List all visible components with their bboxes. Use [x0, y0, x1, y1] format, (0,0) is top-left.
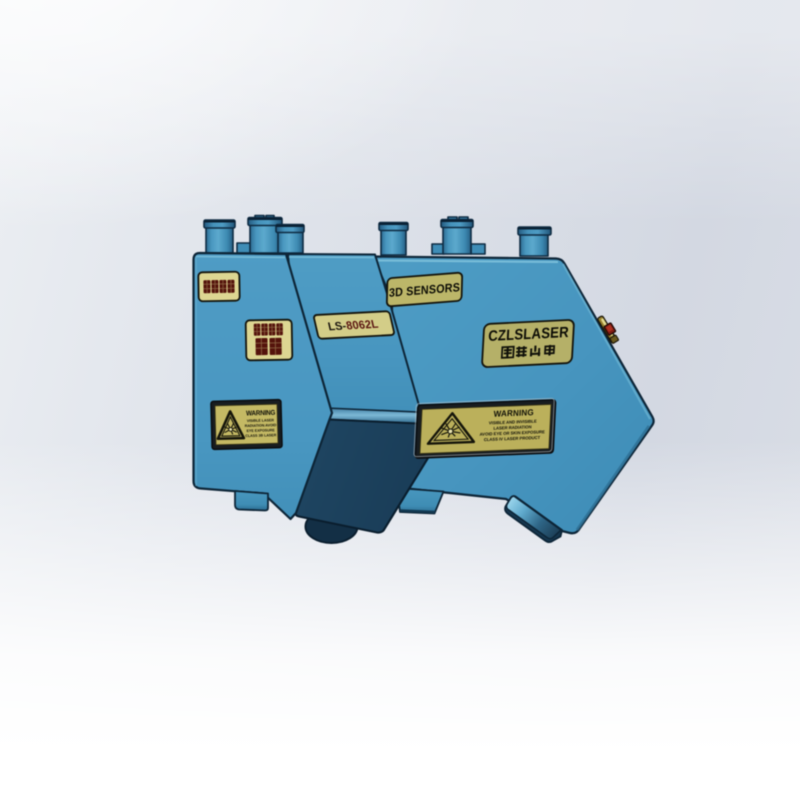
- svg-text:WARNING: WARNING: [493, 407, 534, 419]
- svg-text:LS-8062L: LS-8062L: [327, 319, 380, 334]
- svg-text:EYE EXPOSURE: EYE EXPOSURE: [247, 428, 276, 433]
- svg-text:WARNING: WARNING: [246, 409, 275, 417]
- svg-text:VISIBLE LASER: VISIBLE LASER: [247, 418, 275, 423]
- svg-text:RADIATION AVOID: RADIATION AVOID: [245, 423, 277, 428]
- svg-text:CLASS 3B LASER: CLASS 3B LASER: [245, 433, 276, 438]
